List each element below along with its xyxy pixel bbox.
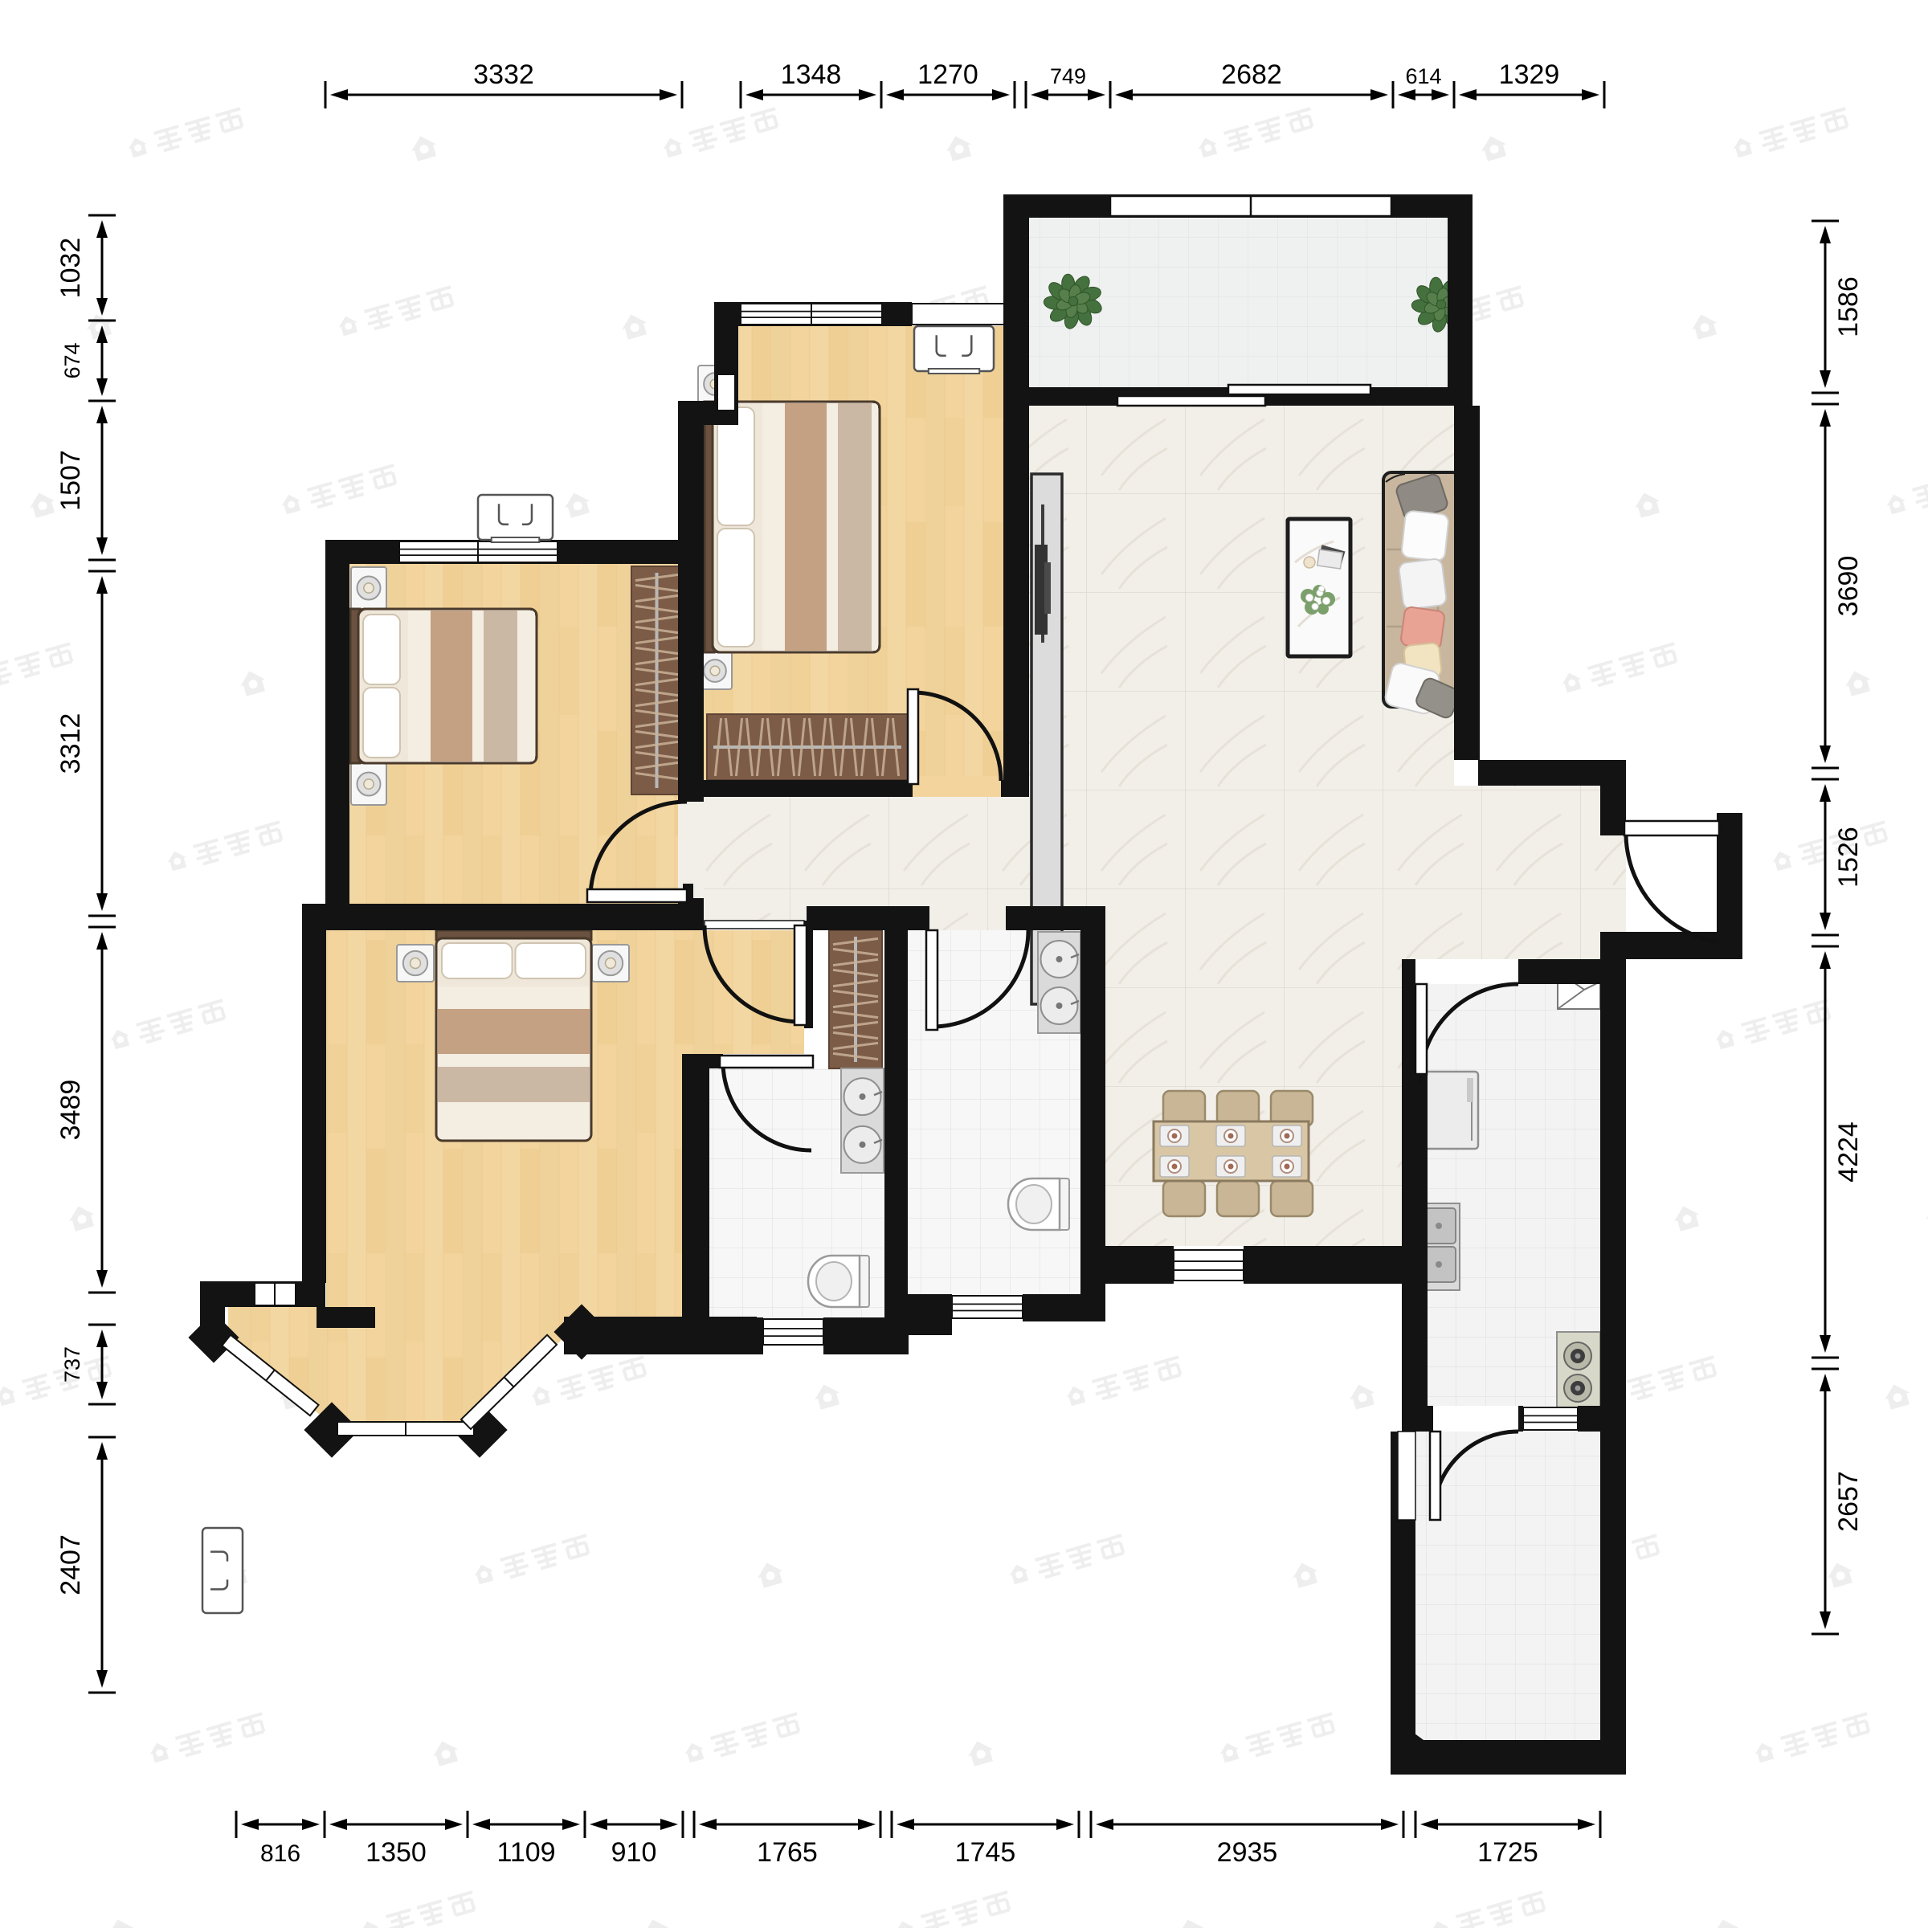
svg-text:1725: 1725 bbox=[1477, 1837, 1538, 1868]
svg-text:3489: 3489 bbox=[55, 1080, 86, 1141]
svg-text:674: 674 bbox=[60, 342, 84, 378]
svg-text:614: 614 bbox=[1405, 64, 1441, 88]
svg-text:749: 749 bbox=[1050, 64, 1086, 88]
svg-text:1745: 1745 bbox=[955, 1837, 1016, 1868]
svg-text:3312: 3312 bbox=[55, 713, 86, 774]
svg-text:1586: 1586 bbox=[1833, 276, 1864, 337]
svg-text:910: 910 bbox=[611, 1837, 657, 1868]
svg-text:1350: 1350 bbox=[366, 1837, 427, 1868]
svg-text:1765: 1765 bbox=[757, 1837, 818, 1868]
svg-text:1109: 1109 bbox=[496, 1837, 555, 1868]
svg-text:2657: 2657 bbox=[1833, 1471, 1864, 1532]
svg-text:1348: 1348 bbox=[781, 59, 842, 90]
svg-text:737: 737 bbox=[60, 1346, 84, 1383]
svg-text:4224: 4224 bbox=[1833, 1121, 1864, 1182]
svg-text:1270: 1270 bbox=[917, 59, 978, 90]
svg-text:2407: 2407 bbox=[55, 1534, 86, 1595]
svg-text:2935: 2935 bbox=[1217, 1837, 1278, 1868]
svg-text:1526: 1526 bbox=[1833, 827, 1864, 888]
svg-text:816: 816 bbox=[260, 1840, 300, 1867]
svg-text:3690: 3690 bbox=[1833, 556, 1864, 617]
svg-text:1507: 1507 bbox=[55, 450, 86, 511]
svg-text:1329: 1329 bbox=[1499, 59, 1560, 90]
svg-text:2682: 2682 bbox=[1221, 59, 1282, 90]
svg-text:3332: 3332 bbox=[473, 59, 534, 90]
svg-text:1032: 1032 bbox=[55, 238, 86, 299]
